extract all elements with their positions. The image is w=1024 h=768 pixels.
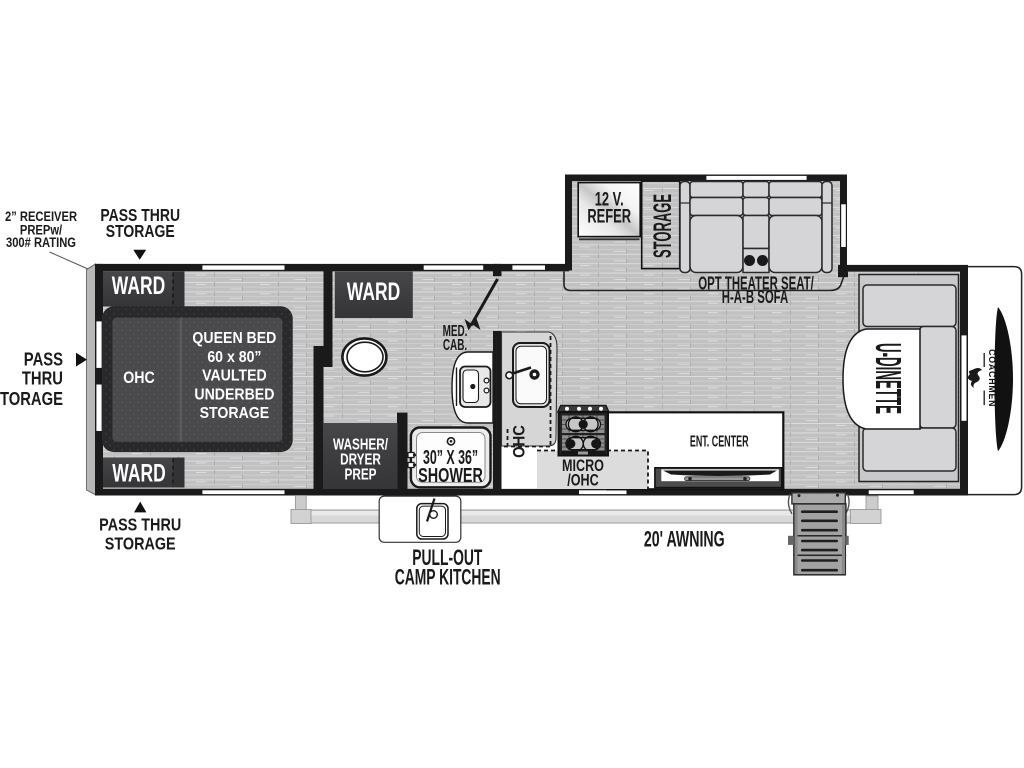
svg-text:STORAGE: STORAGE: [200, 405, 270, 423]
svg-text:60 x 80”: 60 x 80”: [207, 348, 261, 366]
svg-text:300# RATING: 300# RATING: [6, 235, 76, 250]
svg-text:STORAGE: STORAGE: [0, 388, 63, 409]
svg-text:SHOWER: SHOWER: [418, 464, 483, 487]
svg-text:COACHMEN: COACHMEN: [987, 349, 997, 407]
svg-text:/OHC: /OHC: [567, 472, 599, 490]
svg-text:PASS: PASS: [24, 349, 63, 370]
svg-text:H-A-B SOFA: H-A-B SOFA: [722, 287, 788, 307]
svg-text:U-DINETTE: U-DINETTE: [868, 343, 909, 414]
svg-text:PASS THRU: PASS THRU: [99, 515, 181, 535]
svg-text:WARD: WARD: [112, 459, 165, 488]
svg-text:REFER: REFER: [587, 206, 631, 227]
svg-text:STORAGE: STORAGE: [650, 194, 678, 258]
svg-text:PREP: PREP: [344, 466, 376, 483]
svg-text:STORAGE: STORAGE: [105, 534, 176, 554]
svg-text:STORAGE: STORAGE: [106, 222, 175, 241]
svg-text:UNDERBED: UNDERBED: [194, 386, 274, 404]
svg-text:VAULTED: VAULTED: [202, 367, 267, 385]
svg-text:WARD: WARD: [347, 277, 400, 306]
svg-text:20' AWNING: 20' AWNING: [644, 526, 725, 551]
svg-text:CAB.: CAB.: [443, 336, 467, 354]
svg-text:ENT. CENTER: ENT. CENTER: [690, 431, 749, 450]
svg-text:OHC: OHC: [123, 369, 155, 387]
svg-text:QUEEN BED: QUEEN BED: [192, 330, 276, 348]
svg-text:OHC: OHC: [511, 425, 529, 458]
svg-text:THRU: THRU: [22, 368, 63, 389]
svg-text:CAMP KITCHEN: CAMP KITCHEN: [395, 564, 501, 589]
svg-text:WARD: WARD: [112, 271, 165, 300]
